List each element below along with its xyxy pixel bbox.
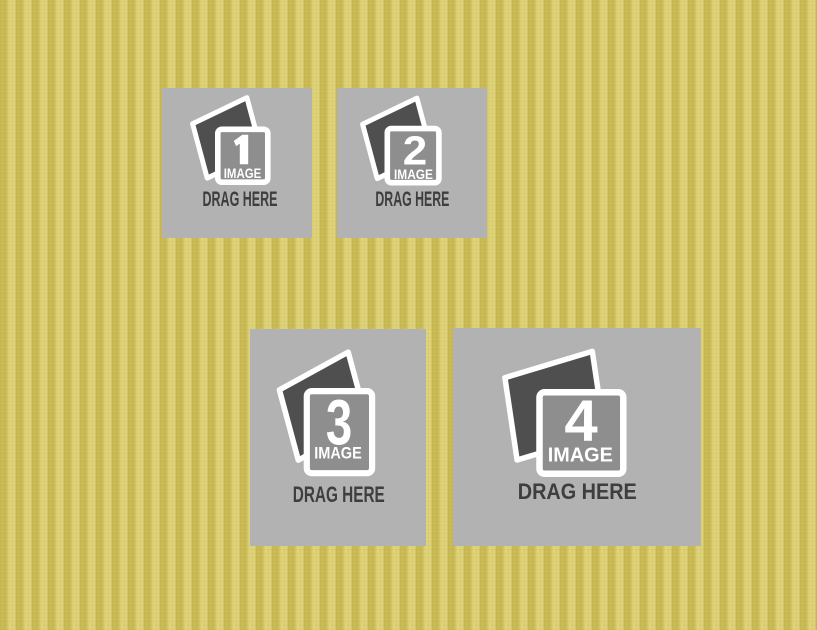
- svg-text:DRAG HERE: DRAG HERE: [203, 188, 278, 211]
- svg-text:IMAGE: IMAGE: [224, 166, 262, 181]
- svg-text:IMAGE: IMAGE: [314, 445, 362, 463]
- svg-text:IMAGE: IMAGE: [548, 444, 613, 466]
- svg-text:DRAG HERE: DRAG HERE: [293, 482, 385, 507]
- svg-text:DRAG HERE: DRAG HERE: [375, 188, 449, 211]
- svg-text:IMAGE: IMAGE: [394, 167, 433, 182]
- svg-text:DRAG HERE: DRAG HERE: [518, 479, 637, 504]
